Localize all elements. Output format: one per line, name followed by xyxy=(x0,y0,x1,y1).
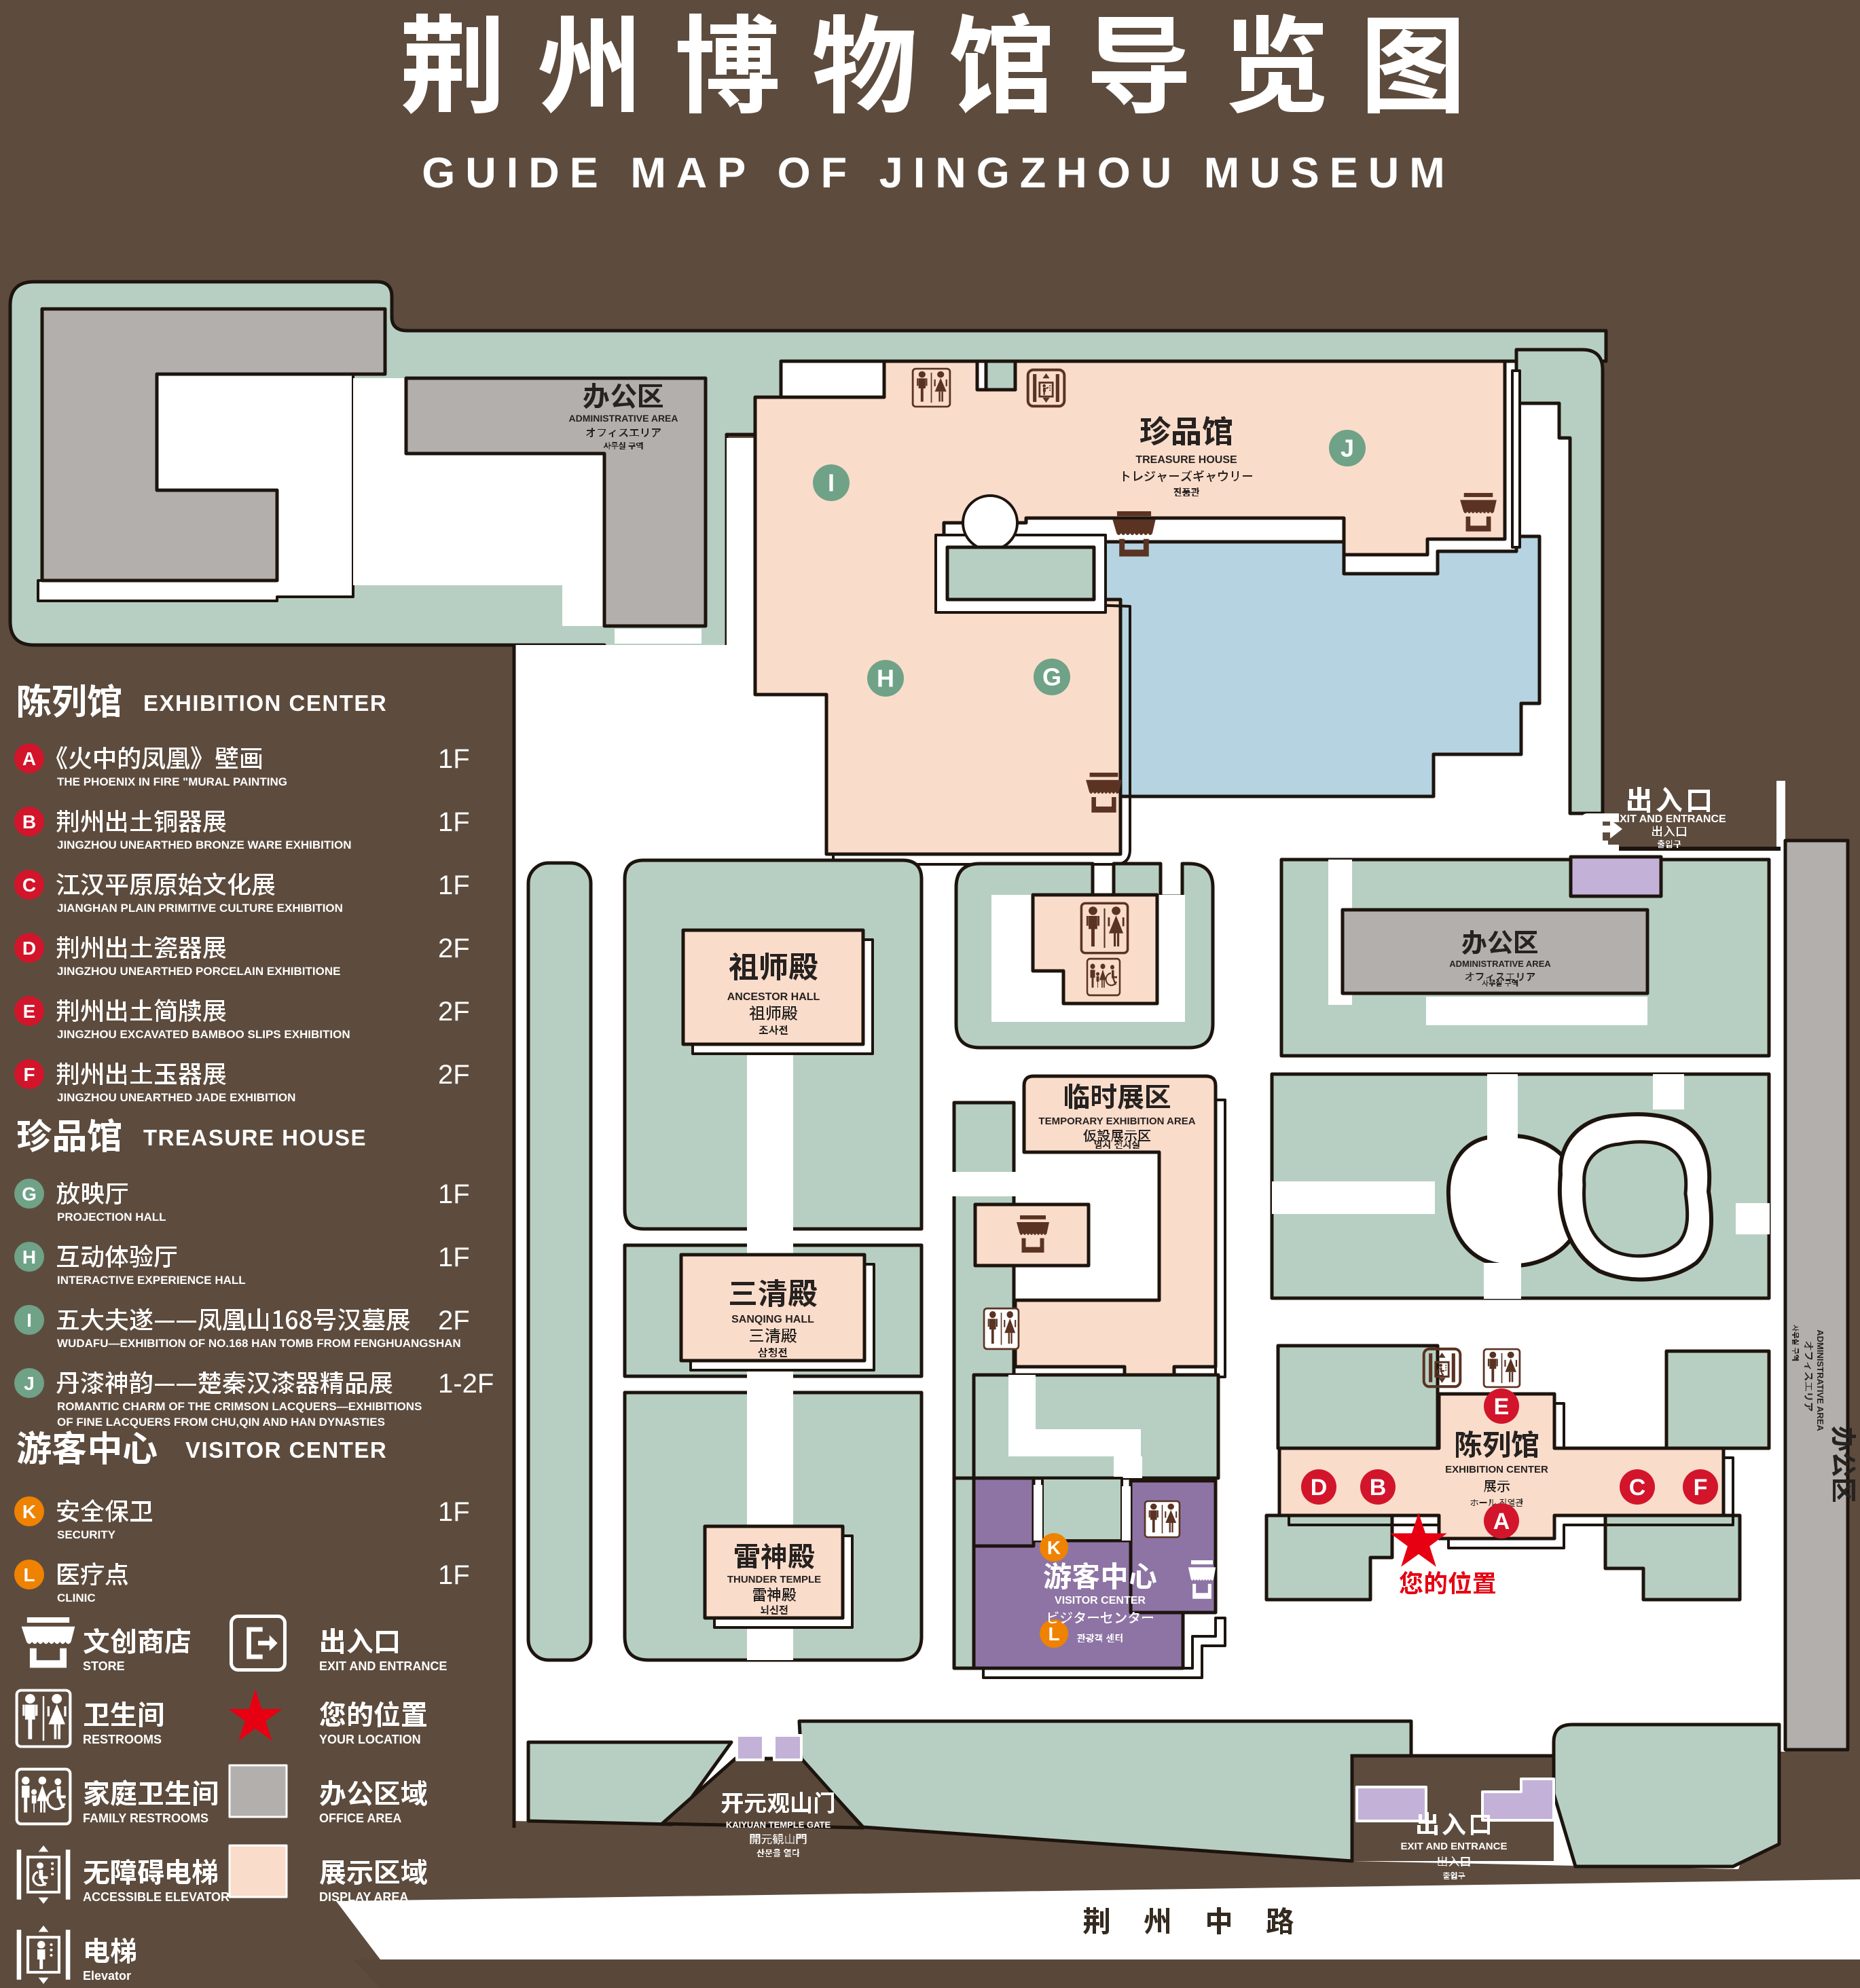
svg-text:ACCESSIBLE ELEVATOR: ACCESSIBLE ELEVATOR xyxy=(83,1890,230,1904)
svg-text:YOUR LOCATION: YOUR LOCATION xyxy=(319,1733,421,1746)
svg-text:1F: 1F xyxy=(438,870,470,900)
svg-text:1-2F: 1-2F xyxy=(438,1369,494,1399)
svg-text:2F: 2F xyxy=(438,1060,470,1090)
svg-text:D: D xyxy=(22,938,36,959)
svg-text:JIANGHAN PLAIN PRIMITIVE CULTU: JIANGHAN PLAIN PRIMITIVE CULTURE EXHIBIT… xyxy=(57,902,343,915)
svg-text:SANQING HALL: SANQING HALL xyxy=(731,1314,814,1325)
svg-text:OF FINE LACQUERS FROM CHU,QIN: OF FINE LACQUERS FROM CHU,QIN AND HAN DY… xyxy=(57,1416,385,1429)
svg-text:ADMINISTRATIVE AREA: ADMINISTRATIVE AREA xyxy=(1449,959,1551,969)
svg-text:TEMPORARY EXHIBITION AREA: TEMPORARY EXHIBITION AREA xyxy=(1038,1116,1195,1127)
svg-text:INTERACTIVE EXPERIENCE HALL: INTERACTIVE EXPERIENCE HALL xyxy=(57,1274,246,1287)
svg-text:THUNDER TEMPLE: THUNDER TEMPLE xyxy=(727,1574,821,1585)
svg-text:1F: 1F xyxy=(438,1242,470,1272)
svg-text:A: A xyxy=(1493,1509,1510,1534)
svg-text:F: F xyxy=(1694,1475,1708,1501)
svg-text:JINGZHOU UNEARTHED BRONZE WARE: JINGZHOU UNEARTHED BRONZE WARE EXHIBITIO… xyxy=(57,839,352,851)
svg-text:JINGZHOU EXCAVATED BAMBOO SLIP: JINGZHOU EXCAVATED BAMBOO SLIPS EXHIBITI… xyxy=(57,1028,350,1041)
svg-text:VISITOR CENTER: VISITOR CENTER xyxy=(185,1437,387,1462)
svg-text:VISITOR CENTER: VISITOR CENTER xyxy=(1055,1595,1146,1606)
svg-text:1F: 1F xyxy=(438,744,470,774)
svg-text:CLINIC: CLINIC xyxy=(57,1591,96,1604)
svg-text:1F: 1F xyxy=(438,807,470,837)
svg-text:B: B xyxy=(22,811,36,832)
svg-text:D: D xyxy=(1311,1475,1328,1501)
svg-text:C: C xyxy=(22,875,36,896)
svg-text:I: I xyxy=(828,469,835,497)
svg-text:1F: 1F xyxy=(438,1560,470,1590)
svg-text:EXIT AND ENTRANCE: EXIT AND ENTRANCE xyxy=(1401,1841,1508,1852)
svg-text:TREASURE HOUSE: TREASURE HOUSE xyxy=(1135,454,1237,466)
svg-text:E: E xyxy=(23,1001,36,1022)
svg-text:C: C xyxy=(1629,1475,1646,1501)
svg-text:I: I xyxy=(26,1310,32,1331)
svg-text:E: E xyxy=(1494,1394,1510,1420)
svg-text:ROMANTIC CHARM OF THE CRIMSON: ROMANTIC CHARM OF THE CRIMSON LACQUERS—E… xyxy=(57,1400,422,1413)
svg-text:2F: 2F xyxy=(438,997,470,1027)
svg-text:H: H xyxy=(22,1247,36,1268)
svg-text:L: L xyxy=(1048,1623,1059,1644)
svg-text:THE PHOENIX IN FIRE "MURAL PAI: THE PHOENIX IN FIRE "MURAL PAINTING xyxy=(57,775,287,788)
svg-text:A: A xyxy=(22,748,36,769)
svg-text:JINGZHOU UNEARTHED PORCELAIN E: JINGZHOU UNEARTHED PORCELAIN EXHIBITIONE xyxy=(57,965,340,978)
svg-text:2F: 2F xyxy=(438,934,470,963)
svg-text:GUIDE MAP OF JINGZHOU MUSEUM: GUIDE MAP OF JINGZHOU MUSEUM xyxy=(422,149,1455,197)
svg-text:STORE: STORE xyxy=(83,1659,125,1673)
svg-text:JINGZHOU UNEARTHED JADE EXHIBI: JINGZHOU UNEARTHED JADE EXHIBITION xyxy=(57,1091,295,1104)
svg-text:OFFICE AREA: OFFICE AREA xyxy=(319,1811,401,1825)
svg-text:G: G xyxy=(1042,663,1061,691)
svg-text:2F: 2F xyxy=(438,1306,470,1336)
svg-text:G: G xyxy=(22,1183,37,1204)
svg-text:SECURITY: SECURITY xyxy=(57,1528,116,1541)
svg-text:1F: 1F xyxy=(438,1497,470,1527)
svg-text:B: B xyxy=(1370,1475,1387,1501)
svg-text:EXIT AND ENTRANCE: EXIT AND ENTRANCE xyxy=(1612,813,1726,825)
svg-text:L: L xyxy=(23,1564,35,1585)
svg-text:J: J xyxy=(1341,435,1354,462)
svg-text:1F: 1F xyxy=(438,1179,470,1209)
svg-text:DISPLAY AREA: DISPLAY AREA xyxy=(319,1890,408,1904)
svg-text:EXIT AND ENTRANCE: EXIT AND ENTRANCE xyxy=(319,1659,447,1673)
svg-text:ADMINISTRATIVE AREA: ADMINISTRATIVE AREA xyxy=(1815,1329,1825,1431)
svg-text:Elevator: Elevator xyxy=(83,1969,131,1983)
svg-text:WUDAFU—EXHIBITION OF NO.168 HA: WUDAFU—EXHIBITION OF NO.168 HAN TOMB FRO… xyxy=(57,1337,461,1350)
svg-text:K: K xyxy=(22,1501,36,1522)
svg-text:J: J xyxy=(24,1373,35,1394)
svg-text:H: H xyxy=(877,665,894,693)
svg-text:EXHIBITION CENTER: EXHIBITION CENTER xyxy=(143,691,387,716)
svg-text:EXHIBITION CENTER: EXHIBITION CENTER xyxy=(1445,1464,1548,1475)
svg-text:K: K xyxy=(1047,1537,1061,1558)
svg-text:RESTROOMS: RESTROOMS xyxy=(83,1733,162,1746)
svg-text:TREASURE HOUSE: TREASURE HOUSE xyxy=(143,1125,367,1150)
svg-text:F: F xyxy=(23,1064,35,1085)
svg-text:FAMILY RESTROOMS: FAMILY RESTROOMS xyxy=(83,1811,208,1825)
svg-text:ADMINISTRATIVE AREA: ADMINISTRATIVE AREA xyxy=(569,413,678,424)
svg-text:ANCESTOR HALL: ANCESTOR HALL xyxy=(727,991,820,1003)
svg-text:PROJECTION HALL: PROJECTION HALL xyxy=(57,1211,166,1223)
svg-text:KAIYUAN TEMPLE GATE: KAIYUAN TEMPLE GATE xyxy=(726,1820,831,1830)
